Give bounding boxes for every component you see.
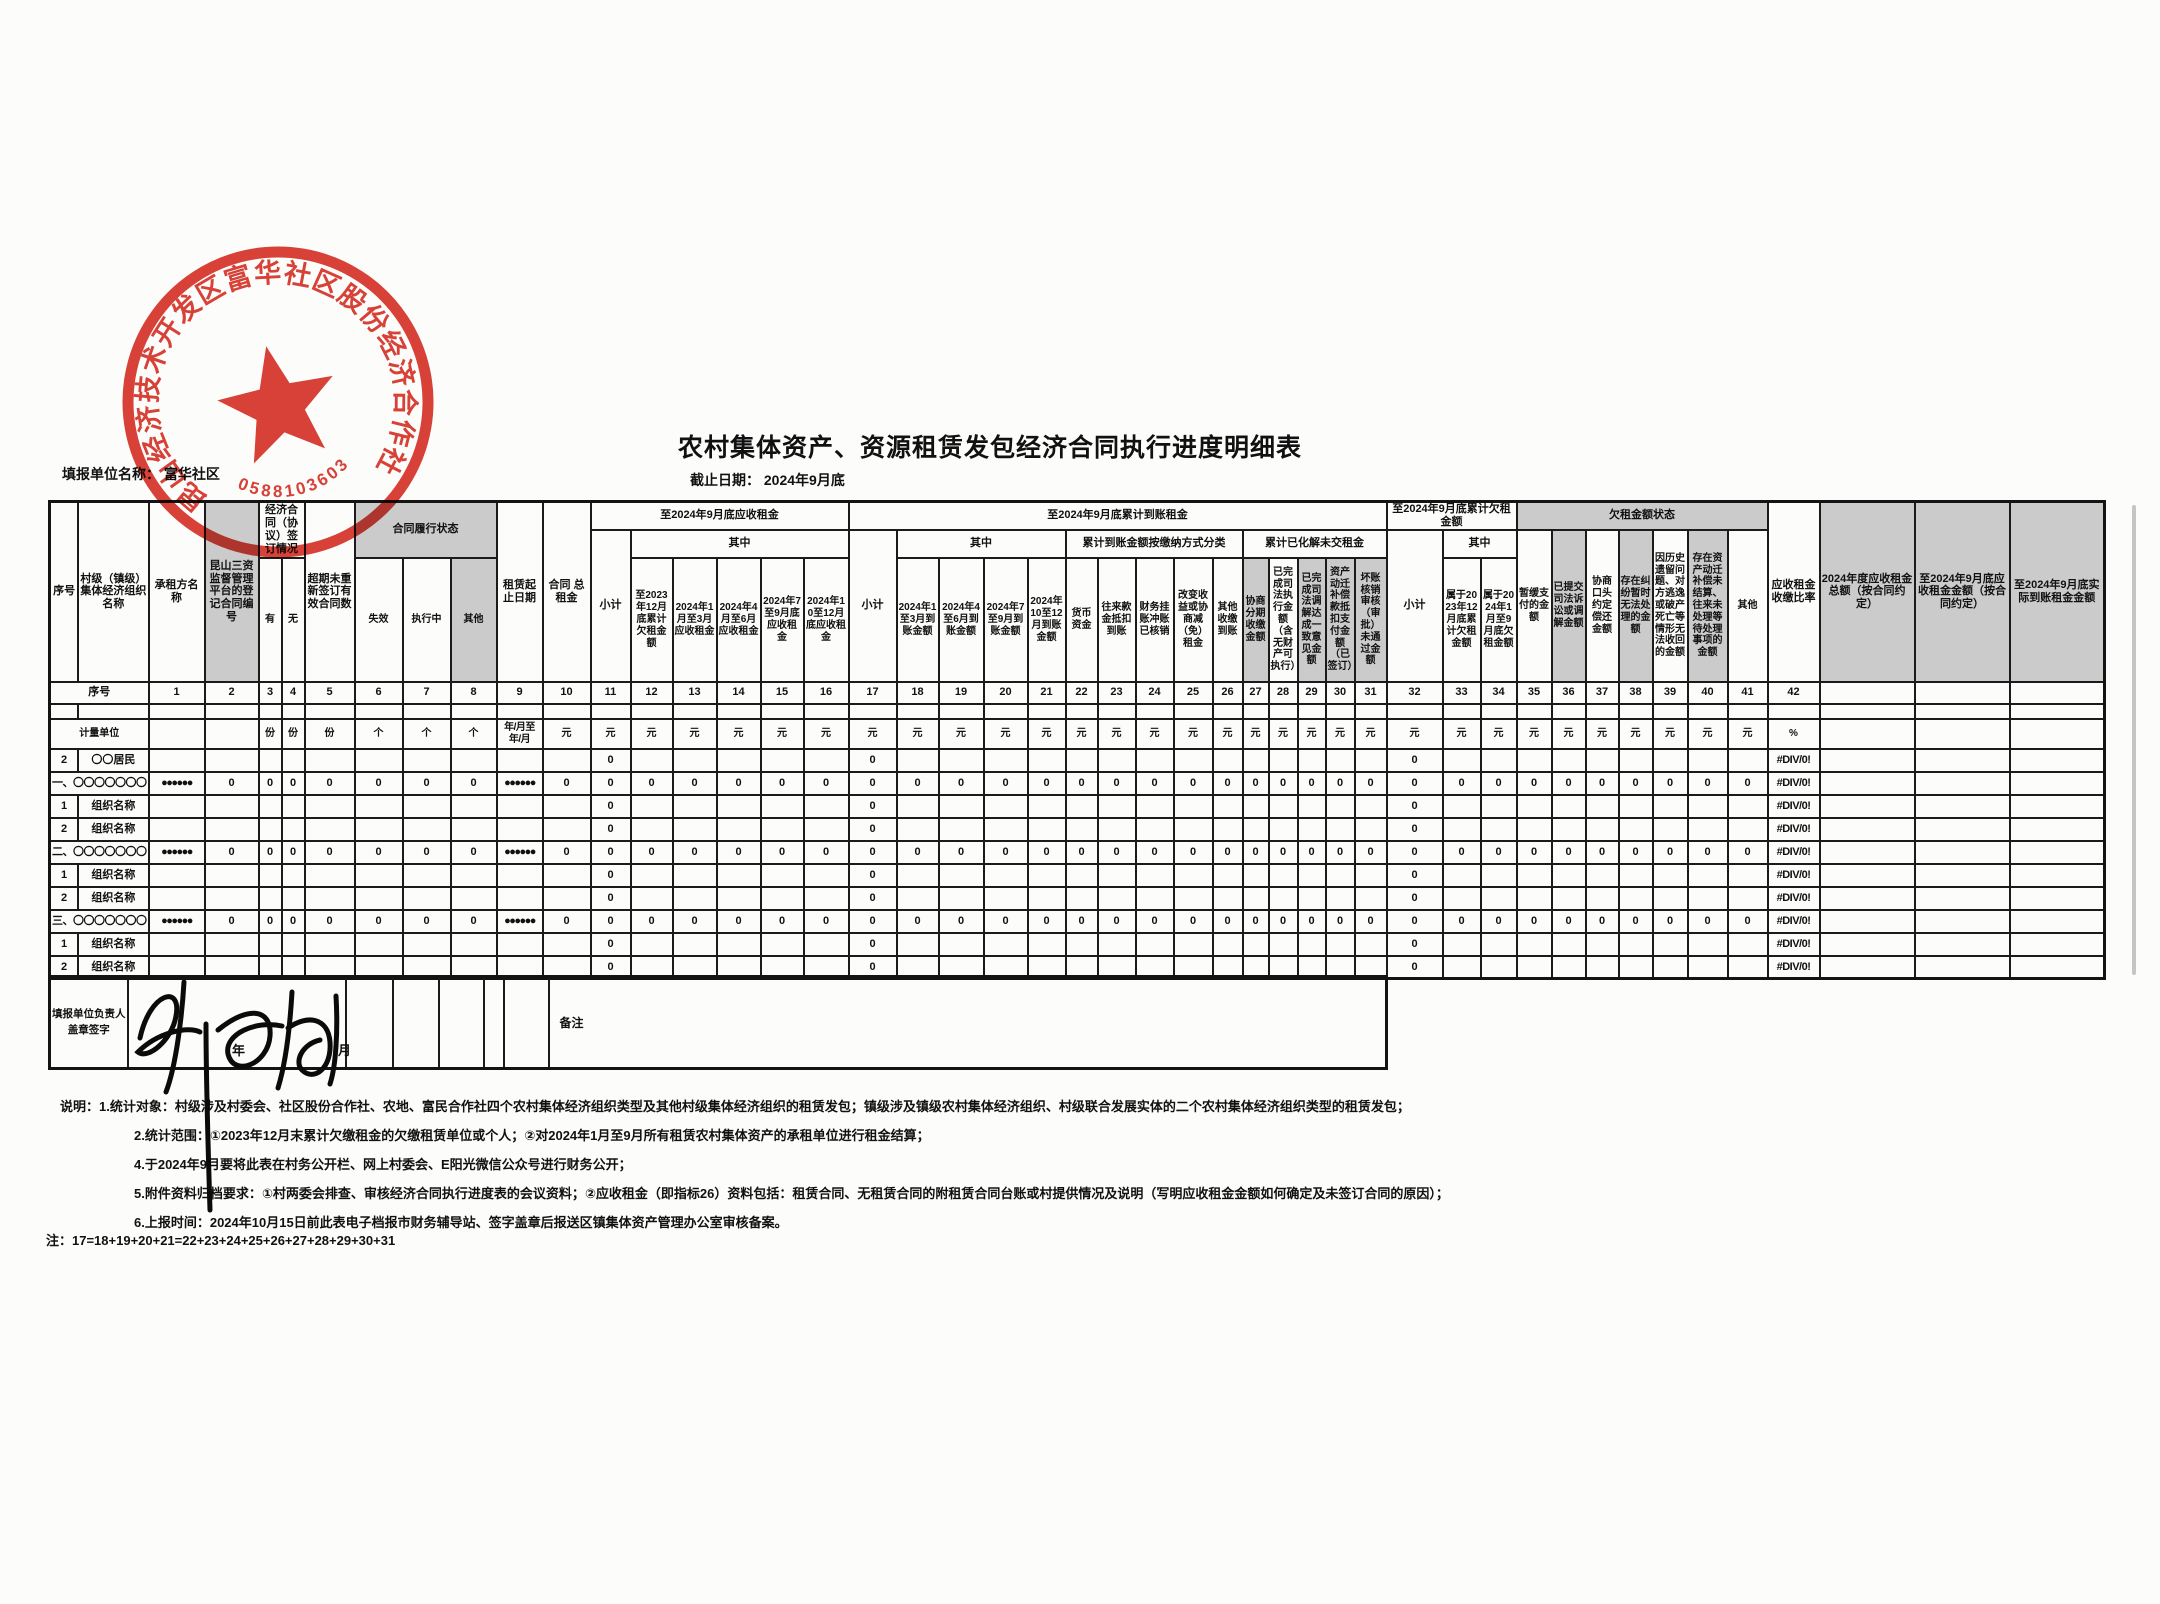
data-cell (1028, 749, 1066, 772)
data-cell (497, 887, 543, 910)
empty-cell (673, 704, 717, 719)
empty-cell (1915, 933, 2010, 956)
row-label: 计量单位 (50, 719, 149, 749)
data-cell: 0 (631, 772, 673, 795)
data-cell (205, 818, 259, 841)
data-cell (1481, 887, 1517, 910)
empty-cell (2010, 956, 2105, 979)
data-cell (939, 887, 984, 910)
data-cell: 0 (1355, 841, 1387, 864)
row-label: 序号 (50, 682, 149, 704)
data-cell (1517, 818, 1552, 841)
data-cell: 0 (1387, 864, 1443, 887)
col-number: 35 (1517, 682, 1552, 704)
data-cell (543, 818, 591, 841)
data-cell: 0 (591, 772, 631, 795)
data-cell (1619, 864, 1653, 887)
data-cell (1586, 749, 1619, 772)
data-cell: 0 (591, 887, 631, 910)
data-cell: 0 (849, 910, 897, 933)
header-cell: 已完成司法执行金额（含无财产可执行） (1269, 558, 1298, 682)
section-label: 二、〇〇〇〇〇〇〇 (50, 841, 149, 864)
data-cell: 0 (1174, 910, 1213, 933)
data-cell: 0 (897, 841, 939, 864)
empty-cell (2010, 749, 2105, 772)
data-cell (1326, 933, 1355, 956)
data-cell (1326, 887, 1355, 910)
data-cell: #DIV/0! (1768, 864, 1820, 887)
data-cell (1619, 887, 1653, 910)
empty-cell (1915, 887, 2010, 910)
col-number: 2 (205, 682, 259, 704)
col-number: 10 (543, 682, 591, 704)
data-cell (305, 887, 355, 910)
unit-cell: 个 (355, 719, 403, 749)
signature (122, 966, 372, 1216)
unit-cell: 个 (403, 719, 451, 749)
empty-cell (761, 704, 804, 719)
data-cell (1243, 795, 1269, 818)
unit-cell: 元 (543, 719, 591, 749)
data-cell: 0 (1098, 841, 1136, 864)
data-cell (897, 795, 939, 818)
data-cell: 0 (673, 910, 717, 933)
empty-cell (2010, 795, 2105, 818)
empty-cell (403, 704, 451, 719)
data-cell (1098, 749, 1136, 772)
data-cell (282, 864, 305, 887)
empty-cell (439, 977, 484, 1069)
data-cell (1174, 933, 1213, 956)
header-cell: 财务挂账冲账已核销 (1136, 558, 1174, 682)
data-cell: #DIV/0! (1768, 772, 1820, 795)
col-number: 32 (1387, 682, 1443, 704)
data-cell: 0 (804, 841, 849, 864)
data-cell (631, 818, 673, 841)
data-cell: 0 (1728, 772, 1768, 795)
col-number: 38 (1619, 682, 1653, 704)
unit-cell: 元 (1028, 719, 1066, 749)
data-cell: 0 (305, 910, 355, 933)
data-cell (673, 818, 717, 841)
data-cell (403, 818, 451, 841)
unit-cell (1820, 719, 1915, 749)
data-cell (543, 749, 591, 772)
header-cell: 至2024年9月底累计欠租金额 (1387, 502, 1517, 530)
data-cell (1481, 749, 1517, 772)
col-number: 41 (1728, 682, 1768, 704)
data-cell: 0 (355, 841, 403, 864)
data-cell (1552, 818, 1586, 841)
empty-cell (1915, 795, 2010, 818)
scan-edge-artifact (2132, 505, 2136, 975)
data-cell (1298, 818, 1326, 841)
data-cell: 0 (591, 841, 631, 864)
data-cell (149, 887, 205, 910)
unit-cell: 元 (1066, 719, 1098, 749)
data-cell: 0 (1136, 841, 1174, 864)
data-cell (717, 864, 761, 887)
section-label: 一、〇〇〇〇〇〇〇 (50, 772, 149, 795)
row-index: 1 (50, 795, 79, 818)
header-cell: 资产动迁补偿款抵扣支付金额（已签订） (1326, 558, 1355, 682)
unit-cell: 元 (1481, 719, 1517, 749)
data-cell: 0 (1387, 956, 1443, 979)
data-cell: 0 (1517, 910, 1552, 933)
notes-prefix: 说明： (60, 1099, 99, 1114)
data-cell (939, 749, 984, 772)
data-cell: 0 (355, 772, 403, 795)
data-cell: 0 (1174, 841, 1213, 864)
empty-cell (1653, 704, 1688, 719)
data-cell (1443, 887, 1481, 910)
deadline-line: 截止日期： 2024年9月底 (690, 470, 845, 490)
data-cell: 0 (1688, 910, 1728, 933)
data-cell (543, 795, 591, 818)
data-cell: 0 (1066, 772, 1098, 795)
col-number: 23 (1098, 682, 1136, 704)
header-cell: 坏账核销审核（审批）未通过金额 (1355, 558, 1387, 682)
header-cell: 其他 (451, 558, 497, 682)
data-cell: ●●●●●● (497, 910, 543, 933)
data-cell (1728, 887, 1768, 910)
empty-cell (804, 704, 849, 719)
data-cell (897, 749, 939, 772)
col-number: 22 (1066, 682, 1098, 704)
data-cell (897, 887, 939, 910)
data-cell: 0 (1443, 772, 1481, 795)
data-cell (1243, 933, 1269, 956)
data-cell (1269, 818, 1298, 841)
data-cell (1552, 864, 1586, 887)
data-cell (205, 749, 259, 772)
data-cell: #DIV/0! (1768, 933, 1820, 956)
data-cell: 0 (1387, 910, 1443, 933)
header-cell: 2024年度应收租金总额（按合同约定） (1820, 502, 1915, 682)
data-cell: 0 (1653, 772, 1688, 795)
data-cell: 0 (717, 772, 761, 795)
data-cell: 0 (1387, 841, 1443, 864)
empty-cell (78, 704, 148, 719)
data-cell: 0 (1174, 772, 1213, 795)
empty-cell (1688, 704, 1728, 719)
data-cell (205, 933, 259, 956)
header-cell: 至2023年12月底累计欠租金额 (631, 558, 673, 682)
data-cell: 0 (1136, 772, 1174, 795)
data-cell (1028, 818, 1066, 841)
data-cell: 0 (1688, 772, 1728, 795)
data-cell (984, 933, 1028, 956)
data-cell: 0 (403, 910, 451, 933)
data-cell (1326, 795, 1355, 818)
header-cell: 已完成司法调解达成一致意见金额 (1298, 558, 1326, 682)
row-index: 1 (50, 864, 79, 887)
data-cell (1688, 864, 1728, 887)
data-cell: 0 (1136, 910, 1174, 933)
data-cell (451, 749, 497, 772)
empty-cell (939, 704, 984, 719)
data-cell (205, 887, 259, 910)
data-cell (259, 864, 282, 887)
data-cell: 0 (1326, 910, 1355, 933)
data-cell: 0 (984, 910, 1028, 933)
data-cell (1136, 795, 1174, 818)
empty-cell (984, 704, 1028, 719)
data-cell (1213, 933, 1243, 956)
unit-cell: 元 (761, 719, 804, 749)
unit-cell: 元 (1098, 719, 1136, 749)
col-number: 1 (149, 682, 205, 704)
data-cell: 0 (1298, 910, 1326, 933)
header-cell: 2024年7至9月底应收租金 (761, 558, 804, 682)
data-cell: 0 (1481, 841, 1517, 864)
data-cell (1174, 864, 1213, 887)
col-number: 21 (1028, 682, 1066, 704)
data-cell: 0 (984, 772, 1028, 795)
header-cell: 因历史遗留问题、对方逃逸或破产死亡等情形无法收回的金额 (1653, 530, 1688, 682)
col-number: 17 (849, 682, 897, 704)
empty-cell (631, 704, 673, 719)
col-number: 5 (305, 682, 355, 704)
col-number: 26 (1213, 682, 1243, 704)
data-cell (451, 864, 497, 887)
header-cell: 执行中 (403, 558, 451, 682)
seal-star (208, 334, 347, 468)
empty-cell (1355, 704, 1387, 719)
data-cell: 0 (849, 772, 897, 795)
col-number: 28 (1269, 682, 1298, 704)
data-cell: 0 (259, 841, 282, 864)
data-cell: 0 (849, 818, 897, 841)
header-cell: 2024年4月至6月应收租金 (717, 558, 761, 682)
data-cell (1517, 933, 1552, 956)
data-cell (761, 749, 804, 772)
data-cell: 0 (631, 910, 673, 933)
unit-cell: 元 (1355, 719, 1387, 749)
empty-cell (1915, 956, 2010, 979)
data-cell (497, 818, 543, 841)
empty-cell (1136, 704, 1174, 719)
col-number: 37 (1586, 682, 1619, 704)
empty-cell (282, 704, 305, 719)
empty-cell (1098, 704, 1136, 719)
data-cell: #DIV/0! (1768, 841, 1820, 864)
data-cell: #DIV/0! (1768, 749, 1820, 772)
svg-text:0588103603: 0588103603 (232, 451, 358, 512)
data-cell: 0 (1552, 910, 1586, 933)
data-cell (1136, 887, 1174, 910)
unit-cell: % (1768, 719, 1820, 749)
empty-cell (2010, 841, 2105, 864)
data-cell: 0 (939, 772, 984, 795)
header-cell: 至2024年9月底应收租金 (591, 502, 849, 530)
empty-cell (1820, 933, 1915, 956)
data-cell (1269, 795, 1298, 818)
empty-cell (1915, 772, 2010, 795)
org-name: 组织名称 (78, 933, 148, 956)
data-cell (1213, 749, 1243, 772)
data-cell (282, 818, 305, 841)
data-cell (1066, 933, 1098, 956)
data-cell (149, 818, 205, 841)
data-cell: 0 (1552, 841, 1586, 864)
unit-cell: 元 (1619, 719, 1653, 749)
data-cell (1619, 749, 1653, 772)
empty-cell (591, 704, 631, 719)
data-cell (1688, 887, 1728, 910)
header-cell: 合同 总租金 (543, 502, 591, 682)
data-cell: 0 (849, 795, 897, 818)
data-cell: #DIV/0! (1768, 887, 1820, 910)
header-cell: 失效 (355, 558, 403, 682)
data-cell (355, 795, 403, 818)
data-cell: 0 (897, 772, 939, 795)
data-cell (1098, 887, 1136, 910)
data-cell: 0 (1355, 772, 1387, 795)
data-cell (205, 795, 259, 818)
section-label: 三、〇〇〇〇〇〇〇 (50, 910, 149, 933)
data-cell (1481, 956, 1517, 979)
data-cell (149, 795, 205, 818)
data-cell (497, 795, 543, 818)
data-cell (1443, 956, 1481, 979)
col-number: 33 (1443, 682, 1481, 704)
data-cell: 0 (1586, 772, 1619, 795)
data-cell (355, 749, 403, 772)
data-cell (403, 795, 451, 818)
data-cell (984, 749, 1028, 772)
col-number: 6 (355, 682, 403, 704)
data-cell: 0 (259, 772, 282, 795)
data-cell (543, 933, 591, 956)
data-cell: 0 (1728, 910, 1768, 933)
data-cell (1443, 749, 1481, 772)
unit-cell: 元 (1213, 719, 1243, 749)
data-cell (761, 887, 804, 910)
empty-cell (504, 977, 549, 1069)
data-cell (1028, 795, 1066, 818)
data-cell (1355, 749, 1387, 772)
data-cell (1586, 887, 1619, 910)
header-cell: 2024年7至9月到账金额 (984, 558, 1028, 682)
data-cell: 0 (849, 749, 897, 772)
year-month-label: 年 月 (232, 1040, 391, 1059)
unit-cell: 元 (717, 719, 761, 749)
header-cell: 暂缓支付的金额 (1517, 530, 1552, 682)
data-cell (1098, 933, 1136, 956)
data-cell (1517, 887, 1552, 910)
col-number: 4 (282, 682, 305, 704)
unit-cell: 元 (1586, 719, 1619, 749)
data-cell (1688, 749, 1728, 772)
data-cell: 0 (355, 910, 403, 933)
header-cell: 属于2023年12月底累计欠租金额 (1443, 558, 1481, 682)
empty-cell (1728, 704, 1768, 719)
header-cell: 小计 (849, 530, 897, 682)
empty-cell (305, 704, 355, 719)
empty-cell (1586, 704, 1619, 719)
data-cell (1653, 864, 1688, 887)
data-cell (497, 864, 543, 887)
col-number: 25 (1174, 682, 1213, 704)
data-cell (1552, 887, 1586, 910)
empty-cell (1443, 704, 1481, 719)
data-cell (1136, 933, 1174, 956)
empty-cell (1820, 749, 1915, 772)
data-cell: ●●●●●● (149, 772, 205, 795)
data-cell (497, 749, 543, 772)
unit-cell: 元 (897, 719, 939, 749)
header-cell: 小计 (591, 530, 631, 682)
data-cell (631, 795, 673, 818)
empty-cell (1820, 682, 1915, 704)
data-cell: 0 (939, 910, 984, 933)
data-cell (631, 864, 673, 887)
data-cell (1728, 864, 1768, 887)
header-cell: 已提交司法诉讼或调解金额 (1552, 530, 1586, 682)
data-cell (673, 749, 717, 772)
responsible-person-label: 填报单位负责人盖章签字 (50, 977, 128, 1069)
data-cell (282, 795, 305, 818)
data-cell (1619, 933, 1653, 956)
data-cell: 0 (1387, 749, 1443, 772)
empty-cell (849, 704, 897, 719)
data-cell: 0 (1269, 841, 1298, 864)
data-cell (1443, 933, 1481, 956)
data-cell (804, 887, 849, 910)
data-cell (1688, 795, 1728, 818)
empty-cell (2010, 682, 2105, 704)
org-name: 组织名称 (78, 795, 148, 818)
data-cell: 0 (1653, 910, 1688, 933)
data-cell: 0 (1443, 841, 1481, 864)
empty-cell (1915, 864, 2010, 887)
header-cell: 2024年1至3月到账金额 (897, 558, 939, 682)
data-cell (939, 933, 984, 956)
empty-cell (355, 704, 403, 719)
data-cell (939, 795, 984, 818)
data-cell: 0 (591, 818, 631, 841)
data-cell: 0 (305, 841, 355, 864)
data-cell (1728, 956, 1768, 979)
data-cell (355, 887, 403, 910)
data-cell: 0 (1243, 772, 1269, 795)
data-cell (1098, 795, 1136, 818)
col-number: 19 (939, 682, 984, 704)
data-cell (355, 818, 403, 841)
data-cell (1653, 887, 1688, 910)
data-cell (149, 933, 205, 956)
header-cell: 至2024年9月底应收租金金额（按合同约定） (1915, 502, 2010, 682)
data-cell: 0 (591, 795, 631, 818)
unit-cell: 份 (259, 719, 282, 749)
unit-cell: 元 (1688, 719, 1728, 749)
data-cell (1269, 887, 1298, 910)
data-cell (1517, 749, 1552, 772)
data-cell (1174, 795, 1213, 818)
data-cell (259, 887, 282, 910)
data-cell: 0 (1213, 841, 1243, 864)
header-cell: 其他收缴到账 (1213, 558, 1243, 682)
col-number: 7 (403, 682, 451, 704)
data-cell (1243, 749, 1269, 772)
empty-cell (2010, 704, 2105, 719)
data-cell (1517, 956, 1552, 979)
empty-cell (1481, 704, 1517, 719)
col-number: 12 (631, 682, 673, 704)
empty-cell (1915, 841, 2010, 864)
data-cell (1213, 887, 1243, 910)
